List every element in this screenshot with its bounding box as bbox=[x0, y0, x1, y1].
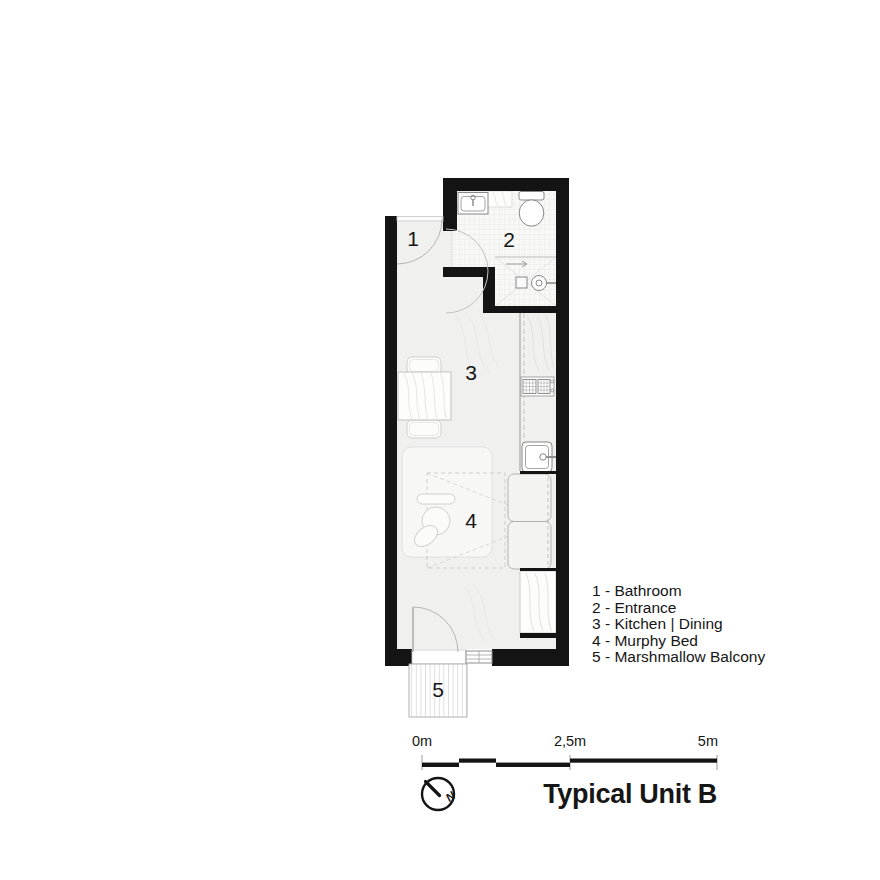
north-label: N bbox=[443, 789, 457, 804]
right-wall bbox=[556, 178, 569, 666]
bottom-wall-left bbox=[385, 649, 412, 666]
floor-plan-sheet: 1 2 3 4 5 1 - Bathroom 2 - Entrance 3 - … bbox=[0, 0, 880, 880]
toilet-icon bbox=[519, 192, 544, 227]
entrance-threshold bbox=[397, 217, 443, 222]
room-number-4: 4 bbox=[465, 509, 477, 532]
page-title: Typical Unit B bbox=[543, 779, 717, 809]
scale-bar: 0m 2,5m 5m bbox=[412, 733, 718, 770]
wardrobe-end-wall bbox=[520, 633, 556, 638]
scale-label-start: 0m bbox=[412, 733, 432, 749]
left-wall bbox=[385, 216, 397, 666]
room-number-5: 5 bbox=[432, 678, 444, 701]
shower-wall-bottom bbox=[483, 306, 556, 313]
room-number-2: 2 bbox=[503, 228, 515, 251]
shower-drain-icon bbox=[532, 276, 547, 291]
legend-item-bathroom: 1 - Bathroom bbox=[592, 582, 682, 599]
room-number-1: 1 bbox=[407, 227, 419, 250]
legend-item-entrance: 2 - Entrance bbox=[592, 599, 676, 616]
room-number-3: 3 bbox=[465, 361, 477, 384]
legend-item-kitchen-dining: 3 - Kitchen | Dining bbox=[592, 615, 723, 632]
balcony-door-opening bbox=[412, 650, 466, 664]
north-arrow-icon: N bbox=[422, 778, 458, 810]
scale-label-mid: 2,5m bbox=[554, 733, 586, 749]
scale-label-end: 5m bbox=[698, 733, 718, 749]
counter-end-bar-top bbox=[520, 471, 556, 474]
kitchen-sink-icon bbox=[522, 442, 556, 472]
top-wall bbox=[443, 178, 569, 191]
sofa bbox=[508, 474, 551, 569]
sink-icon bbox=[458, 193, 488, 215]
cooktop-icon bbox=[521, 377, 554, 396]
legend-item-marshmallow-balcony: 5 - Marshmallow Balcony bbox=[592, 648, 765, 665]
window bbox=[466, 651, 492, 663]
wardrobe bbox=[520, 571, 556, 633]
legend: 1 - Bathroom 2 - Entrance 3 - Kitchen | … bbox=[592, 582, 765, 665]
counter-end-bar-bottom bbox=[520, 568, 556, 571]
legend-item-murphy-bed: 4 - Murphy Bed bbox=[592, 632, 698, 649]
bottom-wall-right bbox=[492, 649, 569, 666]
bathroom-left-wall-stub bbox=[443, 178, 457, 231]
sofa-cushion-bottom bbox=[508, 522, 551, 570]
floor-plan-drawing: 1 2 3 4 5 1 - Bathroom 2 - Entrance 3 - … bbox=[0, 0, 880, 880]
sofa-cushion-top bbox=[508, 474, 551, 522]
shower-mixer-box bbox=[516, 277, 527, 288]
